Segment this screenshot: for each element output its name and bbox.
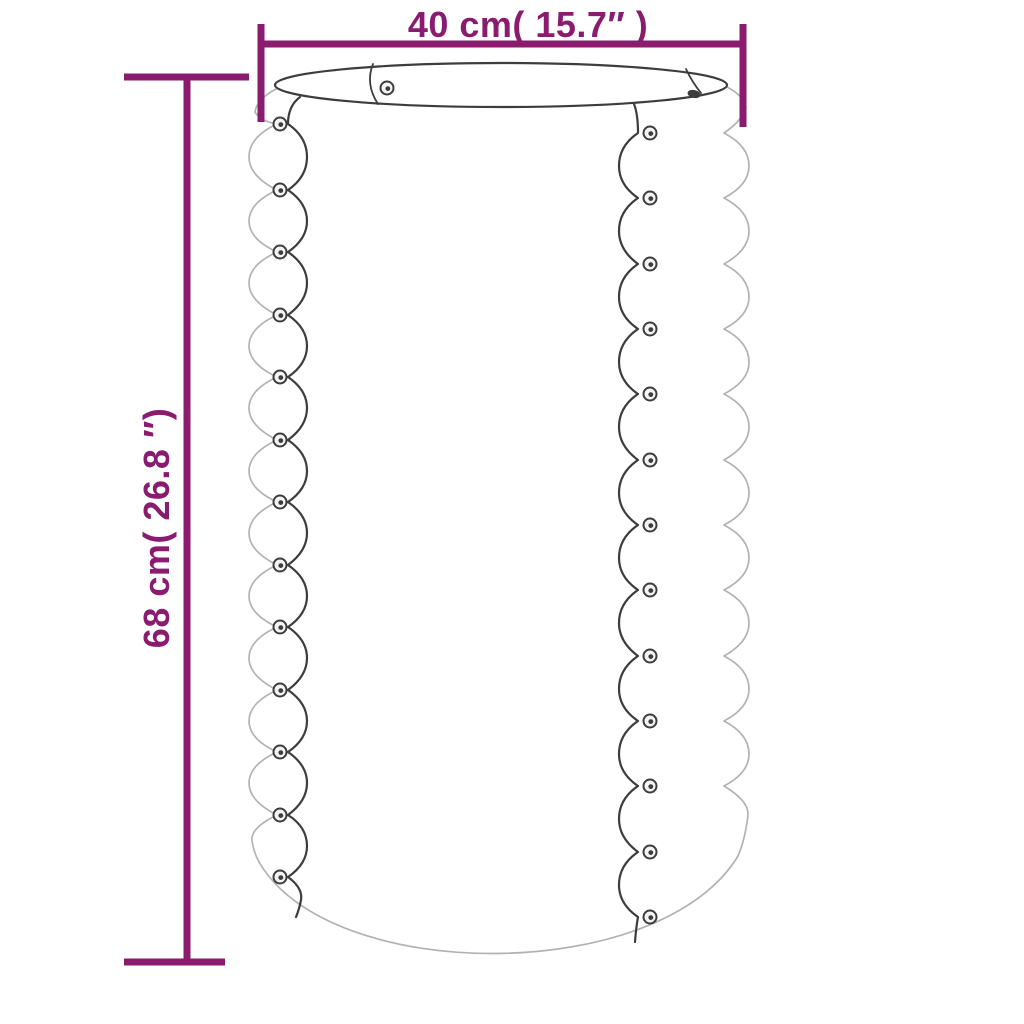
screw-icon [274,684,287,697]
panel-seam-right [619,104,638,942]
screw-icon [644,519,657,532]
planter-bottom-edge [259,856,738,954]
planter-illustration [249,63,749,954]
screw-icon [644,846,657,859]
screw-icon [644,911,657,924]
screw-icon [274,559,287,572]
screw-icon [274,746,287,759]
screw-icon [274,621,287,634]
corrugated-edge-right [724,87,749,856]
width-dimension-label: 40 cm( 15.7″ ) [408,4,648,45]
product-dimension-image: 40 cm( 15.7″ ) 68 cm( 26.8 ″) [0,0,1024,1024]
dimension-annotations: 40 cm( 15.7″ ) 68 cm( 26.8 ″) [124,4,743,962]
screw-icon [644,650,657,663]
rim-screw-left [381,82,394,95]
screw-icon [274,434,287,447]
screw-icon [274,118,287,131]
screw-icon [274,246,287,259]
screw-icon [274,371,287,384]
planter-outline-light [249,87,749,954]
screw-icon [644,258,657,271]
screw-icon [274,184,287,197]
planter-rim [275,63,727,107]
screw-icon [644,454,657,467]
screw-icon [644,323,657,336]
planter-outline-dark [274,63,728,942]
screw-icon [644,584,657,597]
screw-icon [644,780,657,793]
screw-column-right [644,127,657,924]
screw-icon [644,715,657,728]
corrugated-edge-left [249,89,277,862]
screw-icon [274,871,287,884]
height-dimension-label: 68 cm( 26.8 ″) [136,408,177,648]
screw-icon [644,192,657,205]
screw-column-left [274,118,287,884]
screw-icon [274,309,287,322]
screw-icon [274,496,287,509]
panel-seam-left [288,97,307,917]
screw-icon [644,388,657,401]
screw-icon [274,809,287,822]
screw-icon [644,127,657,140]
